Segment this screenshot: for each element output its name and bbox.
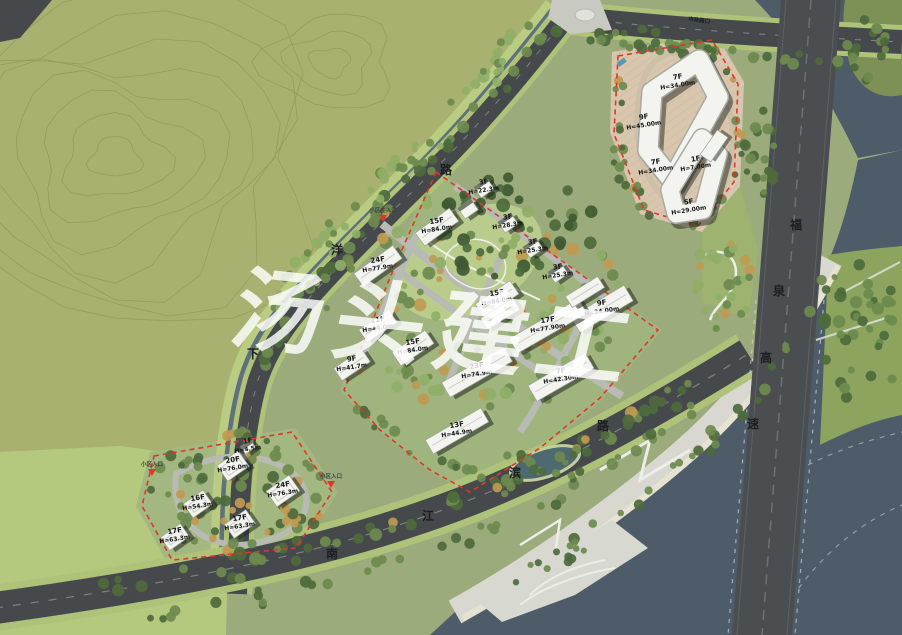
tree bbox=[228, 538, 239, 549]
tree bbox=[603, 259, 613, 269]
tree bbox=[371, 424, 377, 430]
tree bbox=[367, 187, 374, 194]
tree bbox=[114, 576, 122, 584]
tree bbox=[706, 250, 718, 262]
tree bbox=[209, 535, 217, 543]
tree bbox=[722, 300, 731, 309]
tree bbox=[684, 380, 692, 388]
tree bbox=[585, 205, 598, 218]
tree bbox=[596, 250, 606, 260]
tree bbox=[615, 162, 625, 172]
tree bbox=[581, 435, 590, 444]
tree bbox=[872, 303, 884, 315]
tree bbox=[444, 138, 452, 146]
tree bbox=[713, 313, 720, 320]
tree bbox=[887, 315, 897, 325]
tree bbox=[760, 174, 767, 181]
tree bbox=[332, 539, 341, 548]
tree bbox=[782, 346, 790, 354]
tree bbox=[370, 528, 383, 541]
tree bbox=[351, 202, 360, 211]
tree bbox=[270, 450, 282, 462]
tree bbox=[816, 275, 826, 285]
tree bbox=[379, 419, 388, 428]
road-name-char: 路 bbox=[440, 162, 453, 177]
tree bbox=[229, 507, 236, 514]
tree bbox=[325, 219, 333, 227]
tree bbox=[401, 175, 410, 184]
tree bbox=[880, 37, 889, 46]
tree bbox=[581, 548, 587, 554]
tree bbox=[235, 498, 245, 508]
tree bbox=[522, 47, 533, 58]
tree bbox=[549, 219, 561, 231]
tree bbox=[701, 306, 709, 314]
tree bbox=[353, 533, 363, 543]
tree bbox=[447, 99, 454, 106]
tree bbox=[527, 226, 534, 233]
tree bbox=[515, 268, 524, 277]
road-name-char: 速 bbox=[747, 416, 759, 431]
tree bbox=[733, 404, 743, 414]
tree bbox=[538, 468, 546, 476]
tree bbox=[634, 499, 644, 509]
tree bbox=[726, 292, 735, 301]
tree bbox=[176, 490, 185, 499]
tree bbox=[687, 410, 697, 420]
tree bbox=[471, 79, 481, 89]
tree bbox=[388, 525, 396, 533]
tree bbox=[842, 40, 852, 50]
tree bbox=[197, 473, 208, 484]
tree bbox=[352, 230, 361, 239]
tree bbox=[264, 438, 270, 444]
tree bbox=[487, 267, 494, 274]
tree bbox=[426, 139, 434, 147]
tree bbox=[762, 123, 773, 134]
tree bbox=[552, 469, 561, 478]
tree bbox=[165, 491, 171, 497]
tree bbox=[498, 237, 504, 243]
tree bbox=[210, 597, 221, 608]
tree bbox=[315, 241, 322, 248]
tree bbox=[645, 429, 656, 440]
tree bbox=[185, 456, 193, 464]
tree bbox=[476, 268, 483, 275]
tree bbox=[464, 538, 475, 549]
tree bbox=[850, 63, 858, 71]
tree bbox=[468, 102, 478, 112]
tree bbox=[437, 143, 444, 150]
tree bbox=[515, 195, 524, 204]
tree bbox=[631, 445, 642, 456]
tree bbox=[235, 573, 246, 584]
tree bbox=[693, 288, 700, 295]
tree bbox=[302, 460, 309, 467]
label-text: 3F bbox=[552, 262, 563, 271]
tree bbox=[546, 209, 555, 218]
road-name-char: 高 bbox=[760, 350, 772, 365]
tree bbox=[759, 384, 771, 396]
tree bbox=[651, 28, 661, 38]
tree bbox=[879, 331, 889, 341]
tree bbox=[651, 38, 660, 47]
tree bbox=[635, 415, 643, 423]
tree bbox=[586, 36, 594, 44]
tree bbox=[740, 276, 746, 282]
tree bbox=[759, 107, 767, 115]
tree bbox=[626, 44, 634, 52]
tree bbox=[848, 366, 855, 373]
road-name-char: 洋 bbox=[331, 242, 343, 257]
tree bbox=[833, 315, 846, 328]
tree bbox=[489, 89, 498, 98]
tree bbox=[529, 465, 539, 475]
tree bbox=[888, 374, 897, 383]
tree bbox=[571, 538, 578, 545]
tree bbox=[98, 578, 109, 589]
tree bbox=[886, 286, 896, 296]
tree bbox=[720, 308, 730, 318]
tree bbox=[569, 214, 578, 223]
tree bbox=[863, 279, 874, 290]
tree bbox=[761, 155, 770, 164]
tree bbox=[780, 57, 788, 65]
tree bbox=[194, 462, 203, 471]
tree bbox=[738, 151, 744, 157]
tree bbox=[486, 246, 493, 253]
tree bbox=[254, 591, 263, 600]
tree bbox=[516, 450, 526, 460]
tree bbox=[412, 141, 419, 148]
tree bbox=[477, 523, 484, 530]
tree bbox=[670, 462, 677, 469]
tree bbox=[166, 612, 176, 622]
tree bbox=[641, 26, 648, 33]
tree bbox=[502, 245, 510, 253]
tree bbox=[787, 58, 799, 70]
tree bbox=[484, 388, 496, 400]
tree bbox=[136, 580, 148, 592]
tree bbox=[815, 57, 823, 65]
tree bbox=[743, 306, 750, 313]
tree bbox=[343, 242, 355, 254]
tree bbox=[522, 206, 534, 218]
tree bbox=[607, 269, 619, 281]
tree bbox=[553, 548, 560, 555]
tree bbox=[645, 486, 653, 494]
tree bbox=[744, 168, 750, 174]
label-text: 3F bbox=[527, 237, 538, 246]
tree bbox=[745, 154, 756, 165]
tree bbox=[619, 82, 628, 91]
road-name-char: 路 bbox=[597, 418, 610, 433]
tree bbox=[476, 248, 484, 256]
tree bbox=[615, 454, 622, 461]
label-text: 3F bbox=[502, 212, 513, 221]
tree bbox=[551, 500, 562, 511]
tree bbox=[713, 325, 720, 332]
tree bbox=[866, 371, 877, 382]
tree bbox=[740, 140, 751, 151]
tree bbox=[836, 287, 846, 297]
tree bbox=[489, 525, 499, 535]
tree bbox=[524, 21, 533, 30]
tree bbox=[762, 52, 772, 62]
tree bbox=[693, 445, 703, 455]
tree bbox=[612, 29, 620, 37]
tree bbox=[376, 195, 384, 203]
tree bbox=[386, 162, 396, 172]
tree bbox=[496, 198, 510, 212]
tree bbox=[616, 126, 624, 134]
tree bbox=[492, 78, 501, 87]
tree bbox=[639, 405, 651, 417]
tree bbox=[671, 402, 682, 413]
tree bbox=[491, 273, 498, 280]
label-text: 小区入口 bbox=[320, 472, 342, 480]
tree bbox=[575, 467, 584, 476]
label-text: 小区入口 bbox=[141, 460, 163, 468]
tree bbox=[364, 567, 372, 575]
tree bbox=[377, 233, 388, 244]
tree bbox=[860, 15, 870, 25]
tree bbox=[755, 397, 762, 404]
label-text: 3F bbox=[478, 177, 489, 186]
tree bbox=[457, 121, 469, 133]
tree bbox=[555, 241, 565, 251]
label-text: 9F bbox=[638, 112, 649, 121]
tree bbox=[621, 30, 628, 37]
tree bbox=[222, 431, 233, 442]
tree bbox=[159, 615, 167, 623]
tree bbox=[497, 38, 505, 46]
tree bbox=[434, 257, 446, 269]
tree bbox=[236, 480, 247, 491]
road-name-char: 滨 bbox=[509, 465, 521, 480]
tree bbox=[841, 392, 852, 403]
tree bbox=[610, 145, 618, 153]
tree bbox=[380, 174, 390, 184]
tree bbox=[832, 274, 838, 280]
tree bbox=[564, 557, 573, 566]
tree bbox=[407, 156, 416, 165]
tree bbox=[396, 555, 405, 564]
tree bbox=[852, 43, 861, 52]
tree bbox=[821, 355, 831, 365]
tree bbox=[304, 249, 312, 257]
tree bbox=[740, 255, 750, 265]
tree bbox=[705, 425, 716, 436]
tree bbox=[573, 545, 580, 552]
tree bbox=[568, 472, 576, 480]
tree bbox=[528, 562, 534, 568]
tree bbox=[453, 464, 460, 471]
tree bbox=[493, 48, 503, 58]
tree bbox=[596, 35, 606, 45]
tree bbox=[569, 451, 577, 459]
tree bbox=[582, 447, 592, 457]
tree bbox=[614, 174, 623, 183]
tree bbox=[437, 542, 446, 551]
tree bbox=[584, 237, 597, 250]
tree bbox=[178, 462, 185, 469]
tree bbox=[687, 402, 695, 410]
tree bbox=[752, 173, 761, 182]
tree bbox=[854, 259, 865, 270]
tree bbox=[848, 53, 857, 62]
tree bbox=[320, 536, 331, 547]
tree bbox=[405, 519, 416, 530]
tree bbox=[447, 491, 459, 503]
tree bbox=[459, 191, 467, 199]
tree bbox=[617, 510, 624, 517]
tree bbox=[875, 343, 883, 351]
tree bbox=[566, 243, 579, 256]
tree bbox=[563, 185, 573, 195]
tree bbox=[499, 58, 506, 65]
tree bbox=[304, 544, 313, 553]
tree bbox=[503, 85, 512, 94]
tree bbox=[711, 440, 719, 448]
tree bbox=[738, 131, 746, 139]
tree bbox=[544, 565, 551, 572]
tree bbox=[664, 387, 671, 394]
tree bbox=[750, 122, 761, 133]
tree bbox=[291, 556, 301, 566]
tree bbox=[341, 223, 349, 231]
tree bbox=[839, 383, 850, 394]
tree bbox=[438, 456, 447, 465]
tree bbox=[112, 584, 124, 596]
tree bbox=[398, 163, 407, 172]
tree bbox=[371, 557, 382, 568]
tree bbox=[634, 39, 645, 50]
tree bbox=[477, 473, 486, 482]
tree bbox=[508, 66, 519, 77]
tree bbox=[863, 72, 873, 82]
tree bbox=[832, 56, 843, 67]
tree bbox=[389, 426, 400, 437]
tree bbox=[538, 33, 547, 42]
tree bbox=[589, 519, 598, 528]
tree bbox=[562, 460, 568, 466]
tree bbox=[761, 189, 767, 195]
tree bbox=[618, 100, 625, 107]
tree bbox=[246, 502, 253, 509]
tree bbox=[412, 381, 421, 390]
tree bbox=[486, 402, 494, 410]
tree bbox=[235, 549, 247, 561]
tree bbox=[216, 567, 226, 577]
tree bbox=[468, 465, 477, 474]
tree bbox=[622, 414, 634, 426]
tree bbox=[728, 46, 736, 54]
tree bbox=[863, 289, 873, 299]
tree bbox=[633, 182, 641, 190]
tree bbox=[678, 386, 687, 395]
tree bbox=[194, 453, 203, 462]
tree bbox=[696, 262, 704, 270]
tree bbox=[282, 517, 290, 525]
tree bbox=[147, 615, 154, 622]
tree bbox=[501, 490, 508, 497]
tree bbox=[291, 520, 299, 528]
road-name-char: 江 bbox=[422, 508, 434, 523]
tree bbox=[179, 564, 188, 573]
tree bbox=[492, 483, 502, 493]
tree bbox=[513, 579, 519, 585]
label-text: 7F bbox=[672, 72, 683, 81]
tree bbox=[211, 527, 219, 535]
tree bbox=[764, 167, 773, 176]
tree bbox=[866, 325, 873, 332]
tree bbox=[428, 155, 438, 165]
tree bbox=[506, 28, 516, 38]
tree bbox=[818, 316, 831, 329]
tree bbox=[535, 261, 545, 271]
plaza-island bbox=[575, 9, 595, 21]
tree bbox=[882, 46, 889, 53]
tree bbox=[613, 86, 619, 92]
tree bbox=[418, 394, 430, 406]
tree bbox=[264, 529, 270, 535]
tree bbox=[310, 493, 321, 504]
tree bbox=[147, 486, 155, 494]
tree bbox=[307, 580, 316, 589]
tree bbox=[745, 274, 753, 282]
tree bbox=[463, 243, 472, 252]
tree bbox=[503, 451, 511, 459]
tree bbox=[249, 552, 262, 565]
tree bbox=[694, 249, 705, 260]
tree bbox=[391, 381, 402, 392]
tree bbox=[857, 316, 867, 326]
tree bbox=[455, 256, 468, 269]
tree bbox=[564, 221, 573, 230]
tree bbox=[888, 299, 896, 307]
tree bbox=[323, 579, 333, 589]
tree bbox=[535, 559, 542, 566]
tree bbox=[850, 296, 862, 308]
tree bbox=[183, 474, 192, 483]
tree bbox=[822, 285, 831, 294]
tree bbox=[804, 306, 816, 318]
tree bbox=[493, 69, 500, 76]
label-text: 5F bbox=[683, 197, 694, 206]
tree bbox=[550, 25, 562, 37]
label-text: 7F bbox=[650, 157, 661, 166]
label-text: 1F bbox=[690, 154, 701, 163]
tree bbox=[796, 50, 803, 57]
tree bbox=[247, 539, 256, 548]
tree bbox=[658, 428, 666, 436]
road-name-char: 福 bbox=[789, 217, 802, 232]
tree bbox=[770, 142, 777, 149]
site-plan-map: 7FH=34.00m9FH=45.00m7FH=34.00m1FH=7.00m5… bbox=[0, 0, 902, 635]
tree bbox=[729, 244, 738, 253]
tree bbox=[657, 397, 666, 406]
tree bbox=[837, 330, 845, 338]
tree bbox=[480, 68, 487, 75]
tree bbox=[715, 293, 722, 300]
masterplan-stage: 7FH=34.00m9FH=45.00m7FH=34.00m1FH=7.00m5… bbox=[0, 0, 902, 635]
tree bbox=[282, 464, 294, 476]
tree bbox=[873, 24, 883, 34]
tree bbox=[506, 482, 515, 491]
tree bbox=[724, 279, 735, 290]
tree bbox=[392, 226, 404, 238]
